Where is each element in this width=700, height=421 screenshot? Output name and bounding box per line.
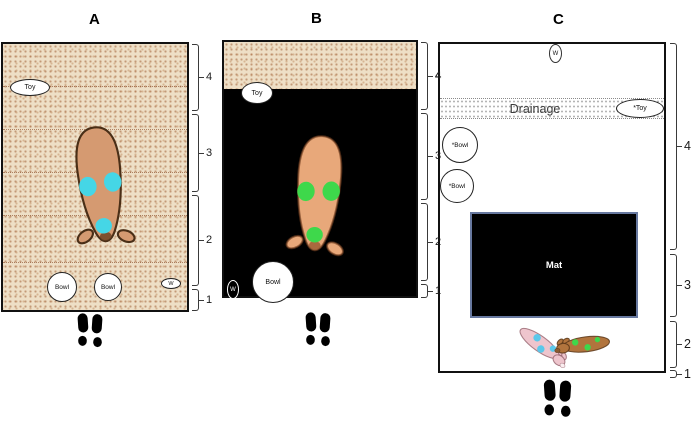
bowl-marker-c-upper: *Bowl [442, 127, 478, 163]
bowl-marker-b: Bowl [252, 261, 294, 303]
water-marker-b: W [227, 280, 239, 299]
observer-footprints-icon [303, 311, 333, 347]
bowl-label: *Bowl [452, 142, 469, 149]
zone-brace [670, 254, 677, 317]
zone-brace [192, 114, 199, 192]
zone-brace [192, 44, 199, 111]
bowl-label: Bowl [265, 279, 280, 286]
bowl-label: *Bowl [449, 183, 466, 190]
zone-brace [670, 43, 677, 250]
panel-c-letter: C [553, 11, 564, 28]
zone-brace [670, 370, 677, 378]
zone-2-bracket-c: 2 [670, 321, 691, 368]
floor-slat-line [3, 262, 187, 263]
water-label: W [553, 51, 559, 57]
zone-3-bracket-c: 3 [670, 254, 691, 317]
zone-brace [421, 203, 428, 281]
zone-number: 2 [433, 237, 441, 248]
water-marker-a: W [161, 278, 181, 289]
zone-4-bracket-c: 4 [670, 43, 691, 250]
water-label: W [168, 281, 173, 287]
bowl-marker-c-lower: *Bowl [440, 169, 474, 203]
zone-number: 1 [433, 286, 441, 297]
toy-marker-b: Toy [241, 82, 273, 104]
toy-label-c: *Toy [633, 105, 647, 112]
pig-figure-b [282, 128, 354, 272]
zone-brace [670, 321, 677, 368]
zone-number: 4 [204, 72, 212, 83]
zone-number: 3 [682, 279, 691, 292]
zone-number: 2 [682, 338, 691, 351]
pen-c [438, 42, 666, 373]
toy-label-a: Toy [25, 84, 36, 91]
panel-a-letter: A [89, 11, 100, 28]
zone-brace [421, 42, 428, 110]
observer-footprints-icon [75, 312, 105, 348]
zone-2-bracket-a: 2 [192, 195, 212, 286]
zone-number: 1 [682, 368, 691, 381]
toy-marker-c: *Toy [616, 99, 664, 118]
bowl-label: Bowl [55, 284, 69, 291]
bowl-marker-a-right: Bowl [94, 273, 122, 301]
drainage-label: Drainage [510, 102, 561, 116]
zone-1-bracket-b: 1 [421, 284, 441, 298]
water-label: W [230, 287, 236, 293]
zone-number: 4 [433, 71, 441, 82]
bowl-marker-a-left: Bowl [47, 272, 77, 302]
zone-number: 4 [682, 140, 691, 153]
zone-3-bracket-b: 3 [421, 113, 441, 200]
figure-pen-layouts: A Toy Bowl Bowl W [0, 0, 700, 421]
zone-number: 1 [204, 295, 212, 306]
toy-marker-a: Toy [10, 79, 50, 96]
zone-1-bracket-a: 1 [192, 289, 212, 311]
zone-number: 3 [204, 148, 212, 159]
zone-1-bracket-c: 1 [670, 370, 691, 378]
zone-brace [421, 284, 428, 298]
observer-footprints-icon [541, 379, 574, 417]
zone-2-bracket-b: 2 [421, 203, 441, 281]
mat-label: Mat [546, 260, 562, 271]
zone-4-bracket-a: 4 [192, 44, 212, 111]
panel-b-letter: B [311, 10, 322, 27]
toy-label-b: Toy [252, 90, 263, 97]
zone-brace [421, 113, 428, 200]
zone-number: 2 [204, 235, 212, 246]
zone-brace [192, 289, 199, 311]
zone-brace [192, 195, 199, 286]
zone-4-bracket-b: 4 [421, 42, 441, 110]
mat-area: Mat [470, 212, 638, 318]
zone-3-bracket-a: 3 [192, 114, 212, 192]
zone-number: 3 [433, 151, 441, 162]
bowl-label: Bowl [101, 284, 115, 291]
water-marker-c: W [549, 44, 562, 63]
